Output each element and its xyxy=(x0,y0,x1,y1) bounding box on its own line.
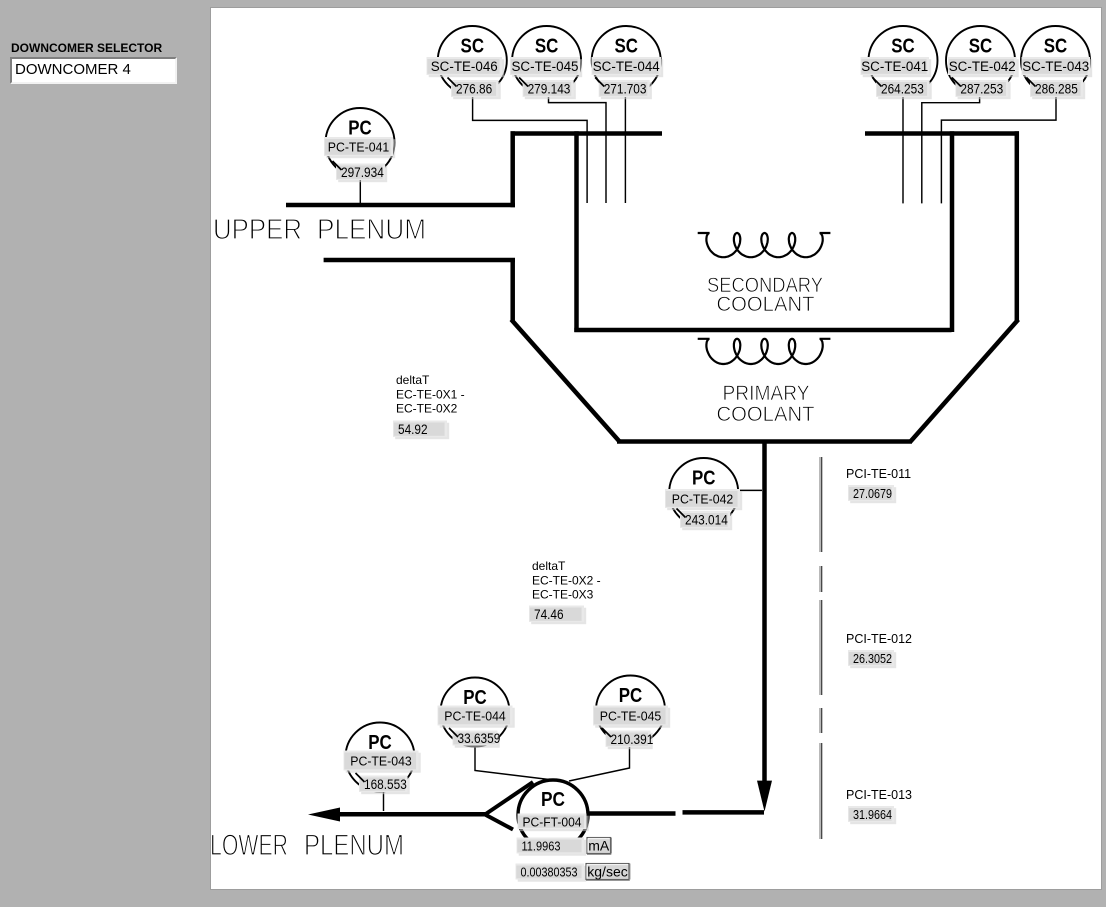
svg-text:PCI-TE-012: PCI-TE-012 xyxy=(846,632,912,646)
svg-text:PCI-TE-013: PCI-TE-013 xyxy=(846,788,912,802)
svg-text:PCI-TE-011: PCI-TE-011 xyxy=(846,467,911,481)
svg-text:deltaT: deltaT xyxy=(532,559,566,573)
svg-text:mA: mA xyxy=(588,838,610,854)
svg-text:SC-TE-042: SC-TE-042 xyxy=(949,59,1016,74)
svg-text:SC: SC xyxy=(614,36,638,58)
svg-text:271.703: 271.703 xyxy=(604,82,647,97)
svg-text:74.46: 74.46 xyxy=(534,607,564,622)
svg-text:27.0679: 27.0679 xyxy=(853,487,892,501)
svg-text:COOLANT: COOLANT xyxy=(717,293,815,316)
svg-text:PC-TE-041: PC-TE-041 xyxy=(328,140,390,155)
svg-text:33.6359: 33.6359 xyxy=(458,731,501,746)
svg-text:EC-TE-0X1 -: EC-TE-0X1 - xyxy=(396,388,465,402)
svg-text:PC: PC xyxy=(692,468,716,490)
svg-text:26.3052: 26.3052 xyxy=(853,652,892,666)
svg-text:210.391: 210.391 xyxy=(611,732,654,747)
svg-text:SC: SC xyxy=(891,36,915,58)
svg-text:54.92: 54.92 xyxy=(398,422,428,437)
svg-text:EC-TE-0X3: EC-TE-0X3 xyxy=(532,588,594,602)
svg-text:286.285: 286.285 xyxy=(1035,82,1078,97)
svg-text:PC-FT-004: PC-FT-004 xyxy=(523,815,582,829)
svg-text:EC-TE-0X2 -: EC-TE-0X2 - xyxy=(532,574,601,588)
svg-text:287.253: 287.253 xyxy=(960,82,1003,97)
svg-text:PC-TE-044: PC-TE-044 xyxy=(444,709,506,724)
svg-text:COOLANT: COOLANT xyxy=(717,403,815,426)
svg-text:264.253: 264.253 xyxy=(881,82,924,97)
svg-text:SC: SC xyxy=(969,36,993,58)
svg-text:SC-TE-041: SC-TE-041 xyxy=(861,59,928,74)
svg-text:kg/sec: kg/sec xyxy=(587,864,627,880)
svg-text:PC-TE-043: PC-TE-043 xyxy=(350,754,412,769)
svg-text:297.934: 297.934 xyxy=(341,165,384,180)
svg-text:31.9664: 31.9664 xyxy=(853,808,892,822)
svg-text:PRIMARY: PRIMARY xyxy=(723,382,810,405)
svg-text:SC-TE-043: SC-TE-043 xyxy=(1022,59,1089,74)
svg-text:SC-TE-046: SC-TE-046 xyxy=(431,59,498,74)
svg-text:PC: PC xyxy=(541,789,565,811)
svg-text:0.00380353: 0.00380353 xyxy=(521,866,578,880)
svg-text:SC-TE-045: SC-TE-045 xyxy=(512,59,579,74)
svg-text:PLENUM: PLENUM xyxy=(317,214,426,246)
svg-text:UPPER: UPPER xyxy=(213,214,302,246)
svg-text:SC: SC xyxy=(461,36,485,58)
svg-text:PC-TE-042: PC-TE-042 xyxy=(672,492,734,507)
svg-text:PC-TE-045: PC-TE-045 xyxy=(600,709,662,724)
svg-text:276.86: 276.86 xyxy=(456,82,492,97)
svg-text:SC: SC xyxy=(535,36,559,58)
svg-text:LOWER: LOWER xyxy=(210,829,288,862)
svg-text:168.553: 168.553 xyxy=(364,777,407,792)
svg-text:279.143: 279.143 xyxy=(528,82,571,97)
svg-text:PLENUM: PLENUM xyxy=(304,829,404,862)
svg-text:SC-TE-044: SC-TE-044 xyxy=(593,59,660,74)
svg-text:11.9963: 11.9963 xyxy=(522,840,561,854)
svg-text:PC: PC xyxy=(619,685,643,707)
svg-text:deltaT: deltaT xyxy=(396,373,430,387)
svg-text:243.014: 243.014 xyxy=(685,513,728,528)
svg-text:PC: PC xyxy=(348,118,372,140)
svg-text:SC: SC xyxy=(1044,36,1068,58)
svg-text:EC-TE-0X2: EC-TE-0X2 xyxy=(396,402,458,416)
